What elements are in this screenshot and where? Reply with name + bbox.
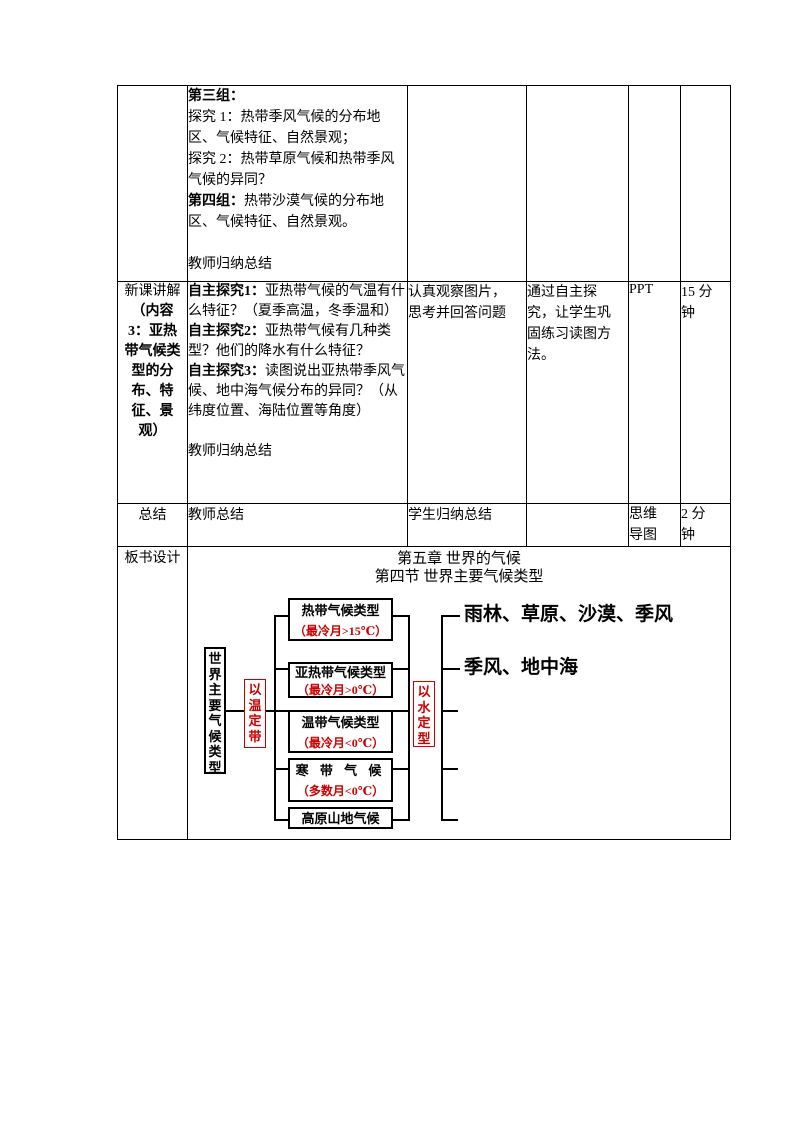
- teacher-activity-cell: 第三组：探究 1：热带季风气候的分布地区、气候特征、自然景观；探究 2：热带草原…: [188, 86, 408, 282]
- line-out-highland: [393, 819, 408, 821]
- line-stub-subtropical: [441, 668, 460, 670]
- line-inner-vertical: [408, 615, 410, 821]
- node-temp-rule: （多数月<0℃）: [290, 781, 391, 801]
- node-tropical: 热带气候类型 （最冷月>15℃）: [288, 598, 393, 641]
- node-temp-rule: （最冷月>15℃）: [290, 621, 391, 641]
- stage-cell: 新课讲解（内容3：亚热带气候类型的分布、特征、景观）: [118, 282, 188, 504]
- line-stub-temperate: [441, 710, 458, 712]
- paragraph: 教师归纳总结: [188, 254, 407, 275]
- line-out-temperate: [393, 710, 408, 712]
- time-cell: 2 分 钟: [681, 504, 731, 547]
- media-cell-empty: [629, 86, 681, 282]
- paragraph: 自主探究1：亚热带气候的气温有什么特征？（夏季高温，冬季温和）: [188, 282, 407, 322]
- line-branch-polar: [274, 768, 288, 770]
- design-intent-cell-empty: [527, 86, 629, 282]
- design-intent-cell: 通过自主探 究，让学生巩 固练习读图方 法。: [527, 282, 629, 504]
- label-subtropical-subtypes: 季风、地中海: [464, 657, 578, 678]
- lesson-plan-table: 第三组：探究 1：热带季风气候的分布地区、气候特征、自然景观；探究 2：热带草原…: [117, 85, 731, 840]
- lesson-plan-page: 第三组：探究 1：热带季风气候的分布地区、气候特征、自然景观；探究 2：热带草原…: [0, 0, 794, 1123]
- node-temp-rule: （最冷月<0℃）: [290, 733, 391, 753]
- line-out-polar: [393, 768, 408, 770]
- node-highland: 高原山地气候: [288, 807, 393, 829]
- paragraph: 探究 2：热带草原气候和热带季风气候的异同？: [188, 149, 407, 191]
- media-cell: PPT: [629, 282, 681, 504]
- paragraph: [188, 233, 407, 254]
- teacher-activity-cell: 自主探究1：亚热带气候的气温有什么特征？（夏季高温，冬季温和）自主探究2：亚热带…: [188, 282, 408, 504]
- line-branch-highland: [274, 819, 288, 821]
- root-node-box: 世界主要气候类型: [204, 647, 226, 774]
- line-out-tropical: [393, 615, 408, 617]
- time-cell: 15 分 钟: [681, 282, 731, 504]
- paragraph: 自主探究2：亚热带气候有几种类型？他们的降水有什么特征？: [188, 322, 407, 362]
- table-row: 总结 教师总结 学生归纳总结 思维 导图 2 分 钟: [118, 504, 731, 547]
- label-tropical-subtypes: 雨林、草原、沙漠、季风: [464, 604, 673, 625]
- node-title: 亚热带气候类型: [290, 665, 391, 682]
- stage-cell: 总结: [118, 504, 188, 547]
- time-cell-empty: [681, 86, 731, 282]
- board-section-title: 第四节 世界主要气候类型: [188, 568, 730, 586]
- line-branch-subtropical: [274, 668, 288, 670]
- board-chapter-title: 第五章 世界的气候: [188, 550, 730, 568]
- node-title: 高原山地气候: [290, 810, 391, 827]
- node-title: 寒 带 气 候: [290, 761, 391, 781]
- temp-rule-box: 以温定带: [244, 679, 266, 748]
- node-temp-rule: （最冷月>0℃）: [290, 682, 391, 699]
- teacher-activity-cell: 教师总结: [188, 504, 408, 547]
- paragraph: [188, 422, 407, 442]
- table-row: 板书设计 第五章 世界的气候 第四节 世界主要气候类型: [118, 547, 731, 840]
- node-temperate: 温带气候类型 （最冷月<0℃）: [288, 710, 393, 753]
- stage-cell-empty: [118, 86, 188, 282]
- student-activity-cell-empty: [408, 86, 527, 282]
- line-left-trunk: [274, 615, 276, 821]
- table-row: 第三组：探究 1：热带季风气候的分布地区、气候特征、自然景观；探究 2：热带草原…: [118, 86, 731, 282]
- node-subtropical: 亚热带气候类型 （最冷月>0℃）: [288, 662, 393, 698]
- table-row: 新课讲解（内容3：亚热带气候类型的分布、特征、景观） 自主探究1：亚热带气候的气…: [118, 282, 731, 504]
- paragraph: 第四组：热带沙漠气候的分布地区、气候特征、自然景观。: [188, 191, 407, 233]
- paragraph: 第三组：: [188, 86, 407, 107]
- node-polar: 寒 带 气 候 （多数月<0℃）: [288, 758, 393, 802]
- paragraph: 自主探究3：读图说出亚热带季风气候、地中海气候分布的异同？（从纬度位置、海陆位置…: [188, 362, 407, 422]
- line-stub-highland: [441, 819, 458, 821]
- student-activity-cell: 学生归纳总结: [408, 504, 527, 547]
- line-branch-tropical: [274, 615, 288, 617]
- stage-title: 新课讲解（内容3：亚热带气候类型的分布、特征、景观）: [118, 282, 187, 442]
- line-stub-polar: [441, 768, 458, 770]
- paragraph: 探究 1：热带季风气候的分布地区、气候特征、自然景观；: [188, 107, 407, 149]
- line-stub-tropical: [441, 615, 460, 617]
- board-design-cell: 第五章 世界的气候 第四节 世界主要气候类型: [188, 547, 731, 840]
- line-out-subtropical: [393, 668, 408, 670]
- water-rule-box: 以水定型: [413, 681, 435, 747]
- media-cell: 思维 导图: [629, 504, 681, 547]
- board-design-header: 板书设计: [118, 547, 188, 840]
- student-activity-cell: 认真观察图片， 思考并回答问题: [408, 282, 527, 504]
- node-title: 热带气候类型: [290, 601, 391, 621]
- line-outer-vertical: [441, 615, 443, 821]
- design-intent-cell-empty: [527, 504, 629, 547]
- node-title: 温带气候类型: [290, 713, 391, 733]
- paragraph: 教师归纳总结: [188, 442, 407, 462]
